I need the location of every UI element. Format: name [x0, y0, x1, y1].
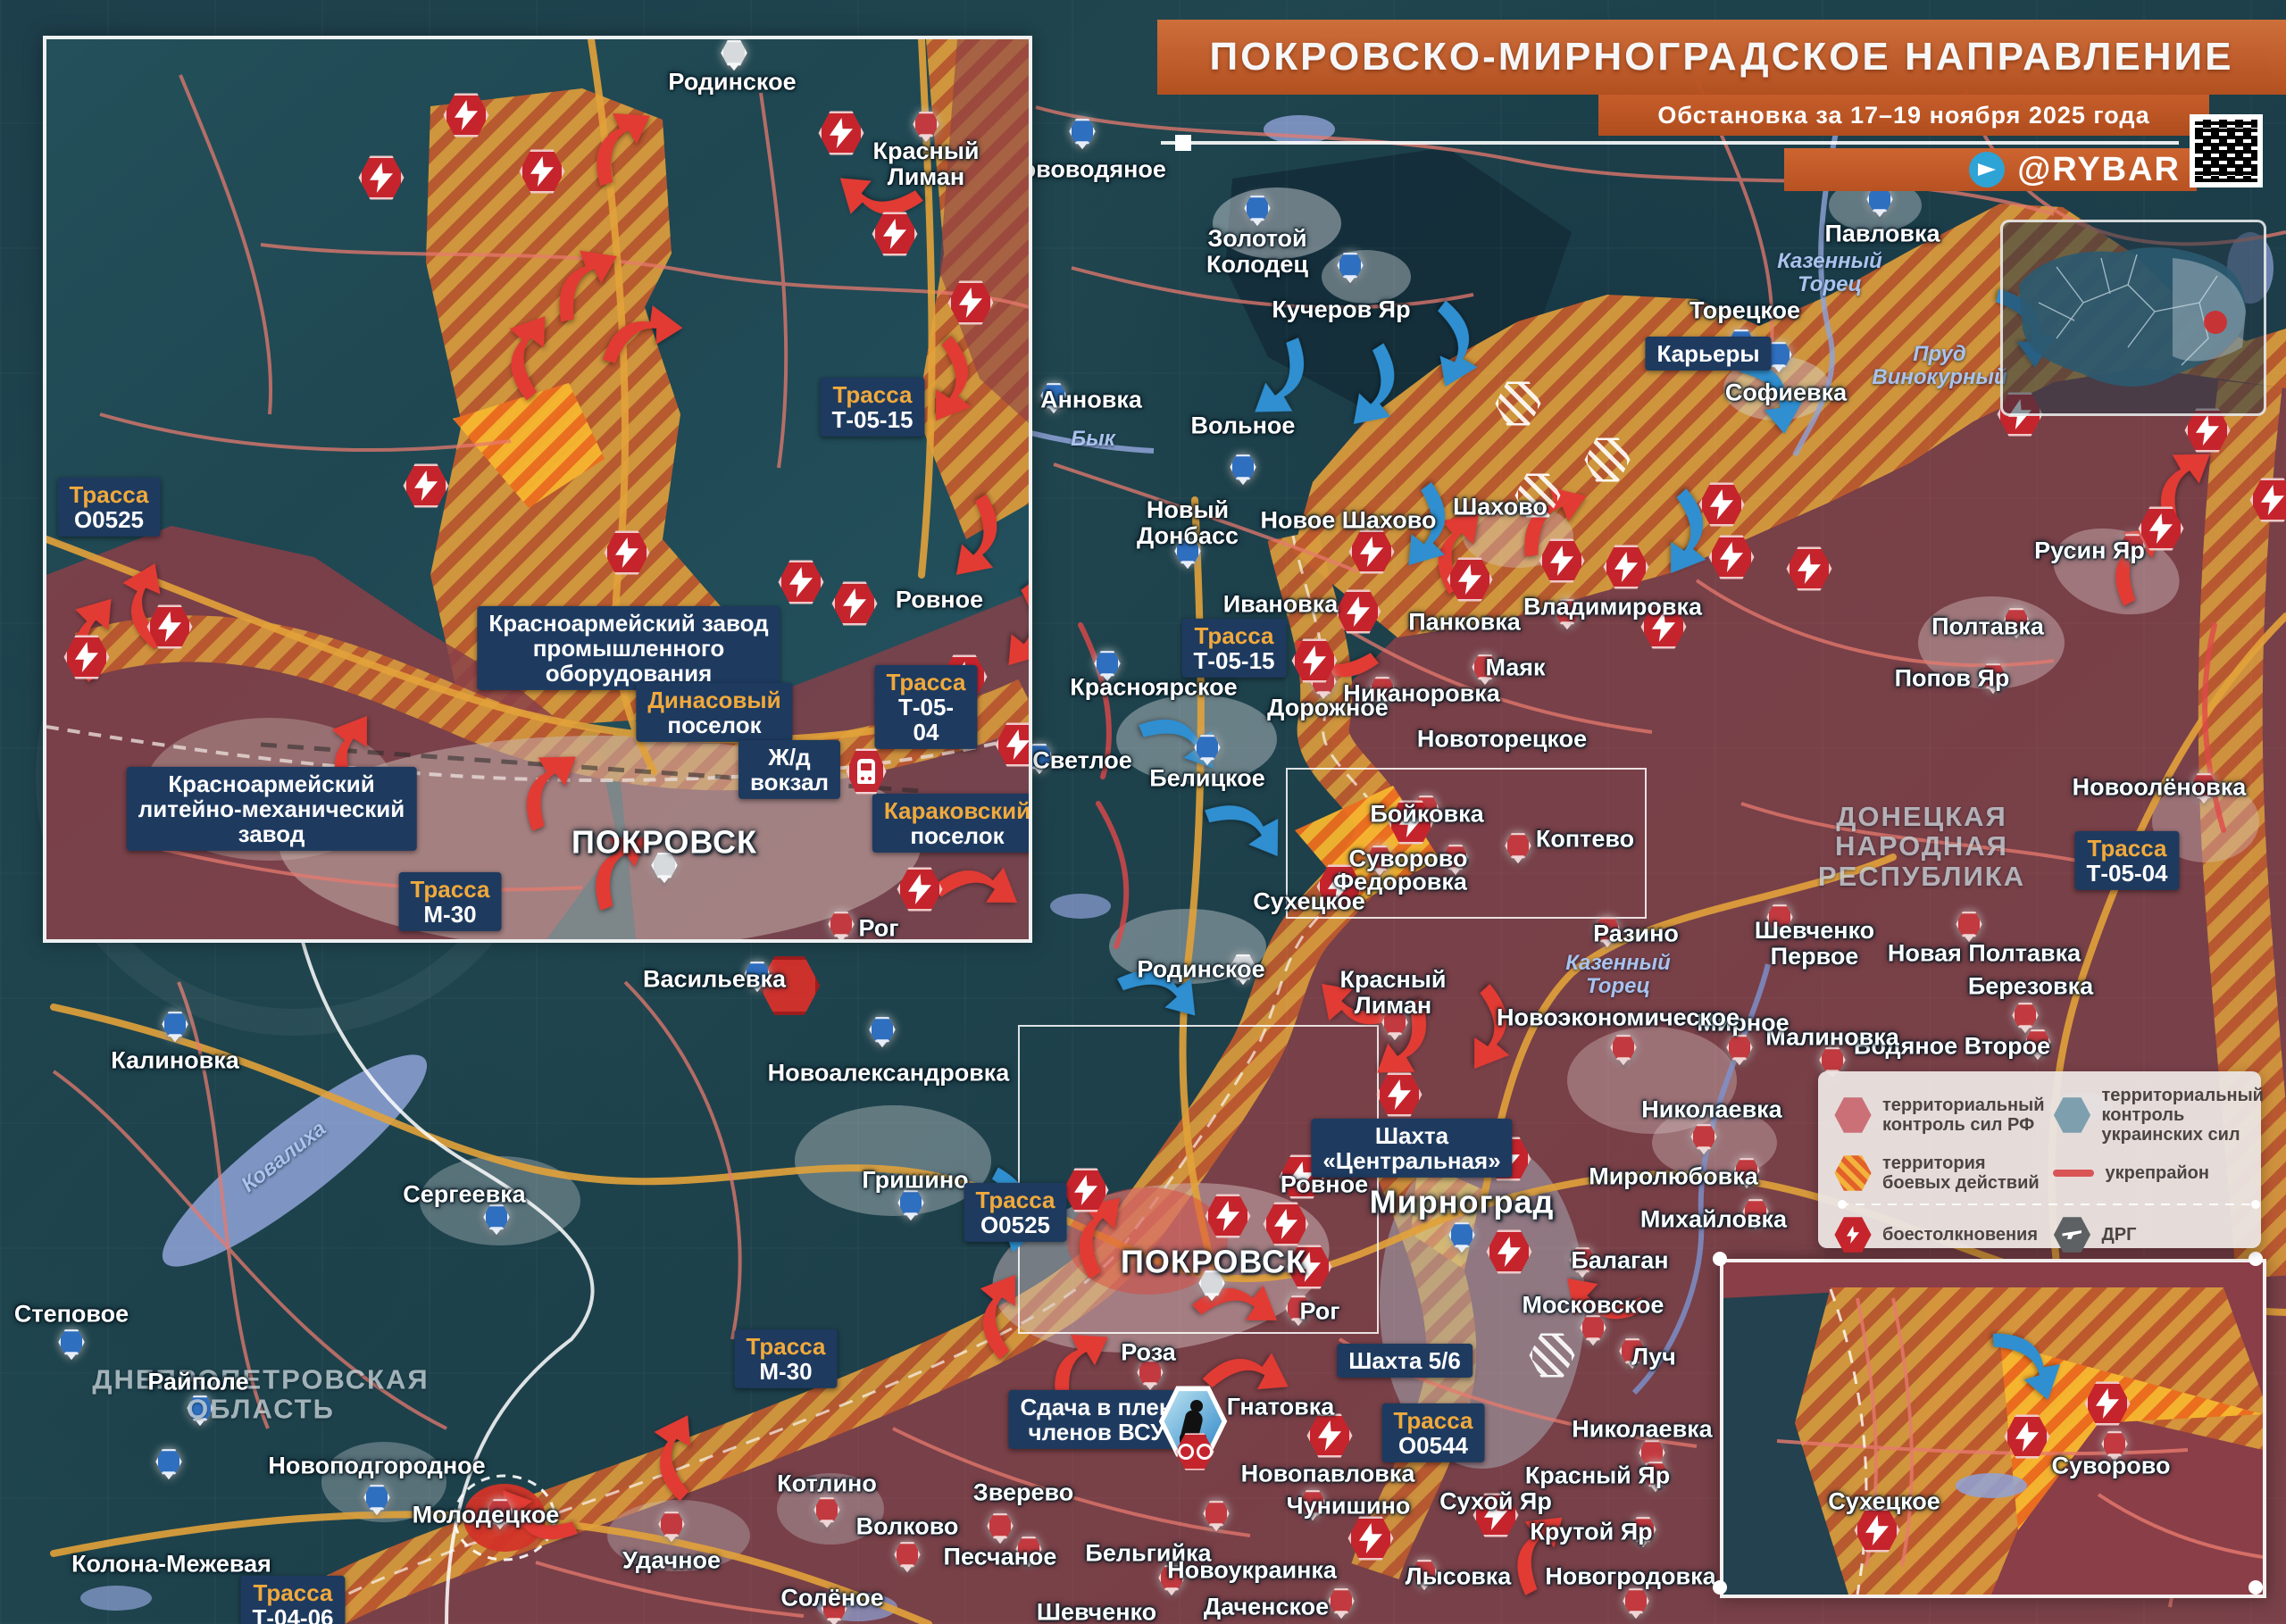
page-subtitle: Обстановка за 17–19 ноября 2025 года: [1657, 102, 2149, 129]
main-label: Шахта 5/6: [1337, 1344, 1473, 1378]
main-label: Лысовка: [1406, 1563, 1512, 1589]
main-label: Вольное: [1191, 412, 1296, 438]
rf-pin-icon: [913, 111, 939, 140]
page-title: ПОКРОВСКО-МИРНОГРАДСКОЕ НАПРАВЛЕНИЕ: [1209, 35, 2233, 79]
clash-icon: [1708, 534, 1755, 580]
ua-pin-icon: [897, 1189, 924, 1219]
main-label: ТрассаТ-05-04: [2074, 831, 2179, 890]
lightning-icon: [1720, 542, 1743, 572]
clash-icon: [1834, 1216, 1872, 1253]
inset-corner-dot: [2248, 1580, 2263, 1595]
lightning-icon: [843, 588, 866, 619]
clash-icon: [604, 529, 650, 576]
main-label: Новоэкономическое: [1497, 1004, 1740, 1030]
clash-icon: [831, 580, 878, 627]
lightning-icon: [615, 537, 638, 568]
rf-pin-icon: [813, 1496, 840, 1526]
title-banner: ПОКРОВСКО-МИРНОГРАДСКОЕ НАПРАВЛЕНИЕ: [1157, 20, 2286, 95]
ua-pin-icon: [1337, 252, 1364, 281]
clash-icon: [1603, 544, 1649, 590]
ua-pin-icon: [363, 1484, 390, 1513]
lightning-icon: [455, 100, 478, 130]
main-label: Луч: [1631, 1344, 1676, 1370]
main-label: Новый Донбасс: [1137, 497, 1239, 549]
legend-label: территориальный контроль украинских сил: [2101, 1086, 2263, 1145]
clash-icon: [1486, 1228, 1532, 1275]
ua-pin-icon: [162, 1011, 188, 1040]
lightning-icon: [789, 567, 813, 597]
main-label: Сдача в плен членов ВСУ: [1008, 1390, 1184, 1449]
lightning-icon: [1359, 1523, 1382, 1553]
clash-icon: [1348, 529, 1395, 575]
lightning-icon: [1347, 596, 1370, 627]
lightning-icon: [2096, 1388, 2119, 1419]
main-label: Красный Яр: [1525, 1462, 1670, 1488]
main-label: ДОНЕЦКАЯ НАРОДНАЯ РЕСПУБЛИКА: [1818, 802, 2025, 891]
main-label: Красный Лиман: [1340, 967, 1447, 1019]
red-arrow-icon: [478, 296, 594, 412]
inset1-label: ТрассаМ-30: [399, 872, 502, 931]
main-label: Павловка: [1824, 221, 1940, 246]
main-label: Миролюбовка: [1589, 1163, 1758, 1189]
main-label: Попов Яр: [1895, 665, 2010, 691]
ua-pin-icon: [58, 1328, 85, 1358]
red-arrow-icon: [588, 283, 705, 399]
rf-control-icon: [1834, 1096, 1872, 1134]
main-label: Роза: [1121, 1339, 1176, 1365]
decor-knob: [1175, 135, 1191, 151]
rf-pin-icon: [1328, 1587, 1355, 1617]
ua-pin-icon: [1194, 734, 1221, 763]
clash-icon: [358, 154, 405, 201]
rf-pin-icon: [658, 1511, 685, 1540]
legend-item: территория боевых действий: [1834, 1153, 2044, 1193]
clash-icon: [519, 148, 565, 195]
main-label: Ковалиха: [238, 1117, 330, 1197]
rf-pin-icon: [987, 1512, 1014, 1542]
rybar-badge[interactable]: @RYBAR: [1784, 148, 2197, 191]
inset1-label: Динасовыйпоселок: [636, 683, 792, 742]
legend-label: укрепрайон: [2105, 1163, 2208, 1183]
main-label: Анновка: [1040, 387, 1142, 412]
main-label: Новоалександровка: [768, 1060, 1010, 1086]
main-label: Котлино: [777, 1470, 877, 1496]
lightning-icon: [1006, 729, 1030, 760]
inset1-label: Красноармейский завод промышленного обор…: [477, 606, 780, 690]
clash-icon: [146, 604, 193, 650]
clash-icon: [1347, 1515, 1394, 1562]
rf-pin-icon: [1203, 1500, 1230, 1529]
main-label: ТрассаО0525: [964, 1183, 1067, 1242]
red-arrow-icon: [580, 100, 673, 193]
decor-line: [1161, 141, 2179, 145]
lightning-icon: [1710, 489, 1733, 520]
legend-label: боестолкновения: [1882, 1225, 2038, 1245]
clash-icon: [1539, 537, 1585, 584]
rf-pin-icon: [1956, 911, 1982, 940]
drg-zone-icon: [1495, 380, 1541, 427]
lightning-icon: [1360, 537, 1383, 567]
main-label: ДНЕПРОПЕТРОВСКАЯ ОБЛАСТЬ: [92, 1365, 429, 1425]
main-label: Калиновка: [111, 1047, 239, 1073]
lightning-icon: [1074, 1175, 1097, 1205]
lightning-icon: [75, 642, 98, 672]
red-arrow-icon: [548, 242, 634, 328]
blue-arrow-icon: [1197, 787, 1294, 883]
inset1-label: ПОКРОВСК: [571, 826, 757, 861]
main-label: Казенный Торец: [1565, 952, 1671, 998]
main-label: Шевченко: [1037, 1599, 1156, 1624]
main-label: Бойковка: [1370, 801, 1483, 827]
main-label: Никаноровка: [1343, 680, 1500, 706]
ua-pin-icon: [155, 1448, 182, 1478]
main-label: Новопавловка: [1241, 1461, 1415, 1487]
main-label: Песчаное: [944, 1544, 1057, 1570]
inset-corner-dot: [1713, 1580, 1727, 1595]
red-arrow-icon: [623, 1394, 743, 1513]
neutral-pin-icon: [721, 39, 747, 69]
train-station-icon: [846, 747, 887, 795]
legend-label: территория боевых действий: [1882, 1153, 2040, 1193]
main-label: Панковка: [1408, 609, 1521, 635]
clash-icon: [1698, 481, 1745, 528]
main-label: Гнатовка: [1227, 1394, 1334, 1420]
lightning-icon: [908, 874, 931, 904]
main-label: Новоукраинка: [1167, 1557, 1337, 1583]
lightning-icon: [1865, 1515, 1889, 1545]
lightning-icon: [414, 471, 438, 501]
rf-pin-icon: [1623, 1587, 1649, 1617]
lightning-icon: [2196, 415, 2219, 446]
ua-pin-icon: [869, 1016, 896, 1045]
main-label: Шевченко Первое: [1755, 918, 1874, 970]
rf-pin-icon: [1505, 832, 1531, 862]
main-label: Рог: [1299, 1298, 1339, 1324]
main-label: Шахта «Центральная»: [1311, 1119, 1512, 1178]
lightning-icon: [2261, 485, 2284, 515]
main-label: Кучеров Яр: [1272, 296, 1410, 322]
clash-icon: [897, 866, 943, 912]
main-label: Родинское: [1137, 956, 1264, 982]
main-label: Шахово: [1453, 494, 1548, 520]
clash-icon: [995, 721, 1032, 768]
main-label: Николаевка: [1641, 1096, 1781, 1122]
qr-code: [2190, 114, 2263, 187]
main-label: Сергеевка: [403, 1181, 525, 1207]
inset1-label: ТрассаТ-05-15: [820, 378, 924, 437]
legend-item: боестолкновения: [1834, 1216, 2044, 1253]
inset1-label: ТрассаО0525: [58, 478, 161, 537]
clash-icon: [778, 559, 824, 605]
main-label: Белицкое: [1149, 765, 1264, 791]
rf-pin-icon: [1690, 1123, 1717, 1153]
inset1-label: Родинское: [668, 69, 796, 95]
main-label: Казенный Торец: [1777, 250, 1882, 296]
main-label: Балаган: [1571, 1247, 1668, 1273]
lightning-icon: [530, 156, 554, 187]
main-label: Ивановка: [1223, 591, 1339, 617]
inset1-label: ТрассаТ-05-04: [875, 665, 978, 749]
lightning-icon: [830, 118, 853, 148]
rf-pin-icon: [1726, 1034, 1753, 1063]
clash-icon: [443, 92, 489, 138]
lightning-icon: [1614, 552, 1638, 582]
main-label: ТрассаМ-30: [735, 1329, 838, 1388]
main-label: ТрассаТ-05-15: [1181, 619, 1286, 678]
legend-divider: [1840, 1203, 2258, 1205]
main-label: Федоровка: [1333, 869, 1467, 895]
lightning-icon: [1498, 1237, 1521, 1267]
main-label: Степовое: [14, 1301, 129, 1327]
subtitle-bar: Обстановка за 17–19 ноября 2025 года: [1598, 95, 2209, 136]
main-label: Разино: [1593, 920, 1679, 946]
main-label: Золотой Колодец: [1206, 226, 1308, 278]
main-label: ТрассаТ-04-06: [240, 1576, 345, 1624]
inset-corner-dot: [2248, 1252, 2263, 1266]
main-label: Новоподгородное: [268, 1453, 485, 1478]
lightning-icon: [2149, 513, 2173, 544]
clash-icon: [872, 211, 918, 257]
clash-icon: [1335, 588, 1381, 635]
clash-icon: [1447, 556, 1493, 603]
lightning-icon: [1458, 564, 1481, 595]
lightning-icon: [1216, 1201, 1239, 1231]
main-label: Пруд Винокурный: [1872, 343, 2007, 389]
lightning-icon: [1550, 545, 1573, 576]
main-label: Даченское: [1204, 1594, 1329, 1620]
ua-pin-icon: [1448, 1221, 1475, 1251]
inset-corner-dot: [1713, 1252, 1727, 1266]
main-label: Коптево: [1536, 826, 1634, 852]
clash-icon: [818, 110, 864, 156]
main-label: Софиевка: [1725, 379, 1847, 405]
rf-pin-icon: [894, 1541, 921, 1570]
main-label: Бык: [1071, 428, 1115, 451]
main-label: Карьеры: [1645, 337, 1771, 371]
inset2-label: Сухецкое: [1828, 1488, 1940, 1514]
inset2-label: Суворово: [2052, 1453, 2171, 1478]
inset1-label: Красноармейский литейно-механический зав…: [127, 767, 417, 851]
main-label: Новогродовка: [1545, 1563, 1715, 1589]
main-label: Крутой Яр: [1530, 1519, 1652, 1545]
legend-item: территориальный контроль украинских сил: [2053, 1086, 2263, 1145]
main-label: Новоторецкое: [1417, 726, 1587, 752]
fortified-line-icon: [2053, 1170, 2094, 1177]
ua-pin-icon: [483, 1203, 510, 1233]
main-label: Гришино: [862, 1167, 968, 1193]
clash-icon: [1376, 1071, 1422, 1118]
rf-pin-icon: [2012, 1002, 2039, 1031]
clash-icon: [1786, 545, 1832, 592]
main-label: Удачное: [622, 1547, 721, 1573]
legend-item: укрепрайон: [2053, 1153, 2263, 1193]
legend-label: ДРГ: [2101, 1225, 2136, 1245]
main-label: Маяк: [1485, 654, 1545, 680]
main-label: Зверево: [973, 1479, 1073, 1505]
drg-zone-icon: [1584, 437, 1631, 483]
main-label: Сухой Яр: [1439, 1488, 1552, 1514]
main-label: Колона-Межевая: [71, 1551, 271, 1577]
clash-icon: [2249, 477, 2286, 523]
blue-arrow-icon: [1974, 1320, 2073, 1419]
drg-zone-icon: [1529, 1332, 1575, 1378]
ua-control-icon: [2053, 1096, 2090, 1134]
main-label: ТрассаО0544: [1382, 1403, 1485, 1462]
main-label: Владимировка: [1523, 594, 1702, 620]
main-label: Райполе: [147, 1369, 248, 1395]
rybar-handle: @RYBAR: [2017, 151, 2181, 189]
rf-pin-icon: [828, 911, 855, 940]
ua-pin-icon: [1230, 454, 1256, 483]
telegram-icon: [1969, 152, 2005, 187]
inset1-label: Ровное: [896, 587, 983, 612]
main-label: Красноярское: [1070, 674, 1237, 700]
main-label: Новоолёновка: [2073, 774, 2247, 800]
inset-sukhetske-detail: СухецкоеСуворово: [1720, 1259, 2266, 1598]
main-label: Светлое: [1032, 747, 1132, 773]
main-label: Волково: [856, 1513, 959, 1539]
red-arrow-icon: [915, 484, 1025, 594]
lightning-icon: [2015, 1421, 2039, 1452]
lightning-icon: [158, 612, 181, 642]
inset1-label: Караковскийпоселок: [872, 794, 1032, 853]
red-arrow-icon: [93, 541, 213, 662]
clash-icon: [947, 279, 994, 326]
inset1-label: Ж/д вокзал: [738, 740, 840, 799]
clash-icon: [2084, 1380, 2131, 1427]
main-label: Полтавка: [1931, 613, 2044, 639]
ua-pin-icon: [1069, 118, 1096, 147]
combat-zone-icon: [1834, 1154, 1872, 1192]
main-label: Московское: [1523, 1292, 1664, 1318]
inset-pokrovsk-detail: РодинскоеКрасный ЛиманТрассаТ-05-15Трасс…: [43, 36, 1032, 943]
main-label: Солёное: [780, 1585, 883, 1611]
map-canvas: ПОКРОВСКО-МИРНОГРАДСКОЕ НАПРАВЛЕНИЕ Обст…: [0, 0, 2286, 1624]
ukraine-minimap: [2000, 220, 2266, 416]
main-label: Чунишино: [1287, 1493, 1411, 1519]
inset1-label: Красный Лиман: [873, 138, 980, 190]
legend-item: территориальный контроль сил РФ: [1834, 1086, 2044, 1145]
lightning-icon: [1274, 1209, 1297, 1239]
blue-arrow-icon: [1313, 333, 1422, 443]
legend-panel: территориальный контроль сил РФтерритори…: [1818, 1071, 2261, 1248]
main-label: Новая Полтавка: [1888, 940, 2081, 966]
main-label: Молодецкое: [413, 1502, 560, 1528]
main-label: Березовка: [1968, 973, 2093, 999]
main-label: Русин Яр: [2034, 537, 2145, 563]
red-arrow-icon: [43, 579, 157, 693]
lightning-icon: [370, 162, 393, 193]
rf-pin-icon: [1580, 1314, 1606, 1344]
clash-icon: [63, 634, 110, 680]
clash-icon: [403, 462, 449, 509]
legend-label: территориальный контроль сил РФ: [1882, 1095, 2044, 1135]
legend-item: ДРГ: [2053, 1216, 2263, 1253]
main-label: Новое Шахово: [1261, 507, 1437, 533]
drg-icon: [2053, 1216, 2090, 1253]
rf-pin-icon: [1610, 1034, 1637, 1063]
main-label: ПОКРОВСК: [1121, 1245, 1306, 1280]
lightning-icon: [1798, 554, 1821, 584]
lightning-icon: [1318, 1420, 1341, 1451]
lightning-icon: [959, 287, 982, 318]
ua-pin-icon: [1244, 195, 1271, 224]
main-label: Мирноград: [1370, 1186, 1555, 1220]
main-label: Торецкое: [1689, 297, 1800, 323]
main-label: Михайловка: [1640, 1206, 1787, 1232]
clash-icon: [2004, 1413, 2050, 1460]
lightning-icon: [1388, 1079, 1411, 1110]
lightning-icon: [1303, 645, 1326, 676]
inset1-label: Рог: [858, 915, 898, 941]
main-label: Николаевка: [1572, 1416, 1712, 1442]
lightning-icon: [883, 219, 906, 249]
main-label: Васильевка: [643, 966, 786, 992]
main-label: Ровное: [1281, 1171, 1368, 1197]
